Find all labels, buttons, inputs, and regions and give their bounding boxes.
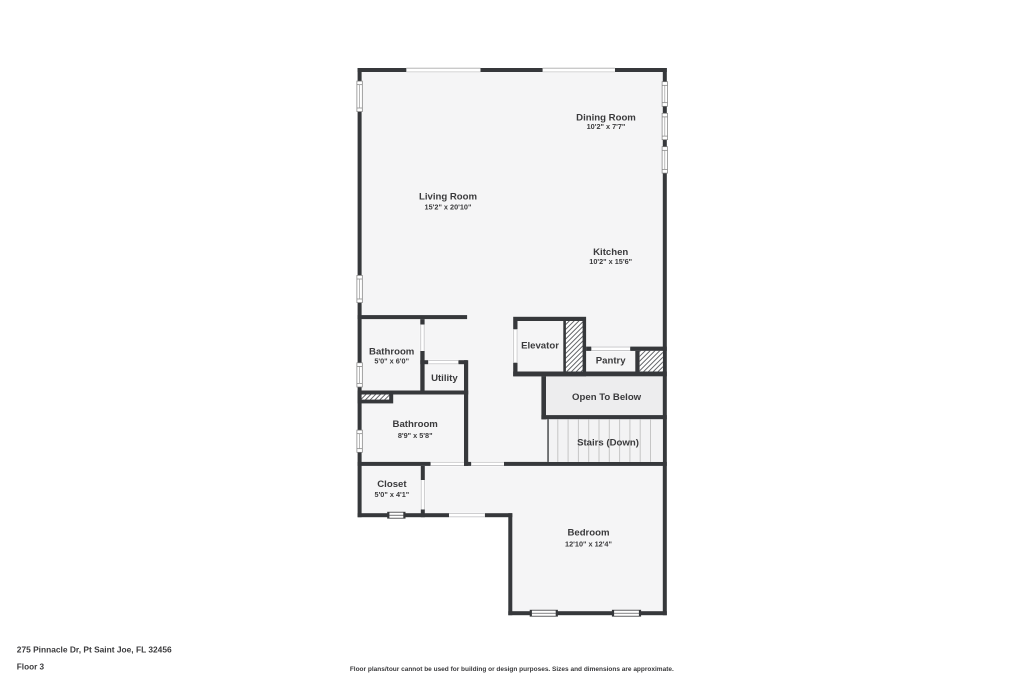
svg-text:Pantry: Pantry [596, 356, 627, 367]
svg-text:Floor plans/tour cannot be use: Floor plans/tour cannot be used for buil… [350, 666, 674, 673]
svg-text:Living Room: Living Room [419, 191, 477, 202]
svg-text:Closet: Closet [377, 479, 407, 490]
svg-text:12'10" x 12'4": 12'10" x 12'4" [565, 539, 612, 548]
svg-text:5'0" x 4'1": 5'0" x 4'1" [375, 490, 410, 499]
svg-text:Floor 3: Floor 3 [17, 663, 45, 672]
svg-text:10'2" x 7'7": 10'2" x 7'7" [587, 122, 626, 131]
svg-text:Open To Below: Open To Below [572, 392, 642, 403]
svg-text:Elevator: Elevator [521, 341, 559, 352]
svg-text:Bedroom: Bedroom [567, 527, 609, 538]
svg-text:Stairs (Down): Stairs (Down) [577, 438, 639, 449]
svg-text:275 Pinnacle Dr, Pt Saint Joe,: 275 Pinnacle Dr, Pt Saint Joe, FL 32456 [17, 644, 172, 654]
svg-text:Utility: Utility [431, 373, 458, 384]
svg-text:10'2" x 15'6": 10'2" x 15'6" [589, 257, 632, 266]
svg-text:15'2" x 20'10": 15'2" x 20'10" [425, 202, 472, 211]
svg-text:Bathroom: Bathroom [393, 419, 438, 430]
svg-text:5'0" x 6'0": 5'0" x 6'0" [374, 357, 409, 366]
svg-text:8'9" x 5'8": 8'9" x 5'8" [398, 431, 433, 440]
